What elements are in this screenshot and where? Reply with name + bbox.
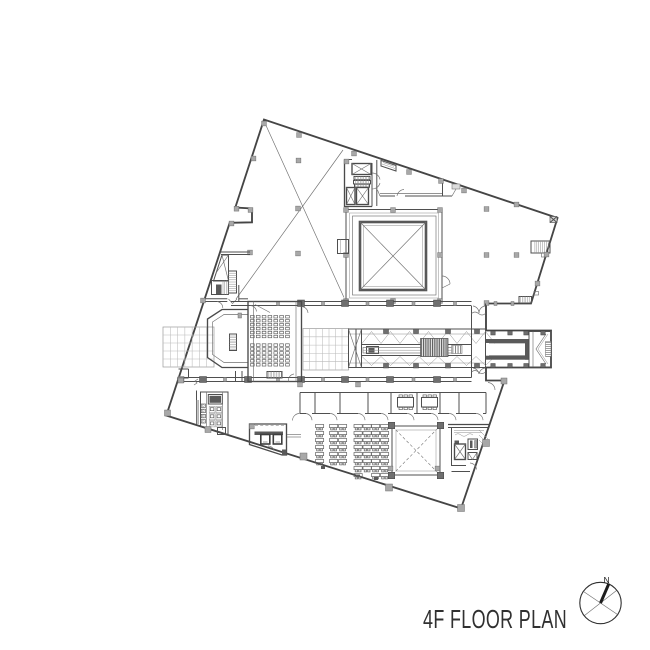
svg-text:N: N <box>604 575 610 585</box>
svg-text:4F FLOOR PLAN: 4F FLOOR PLAN <box>423 606 567 634</box>
